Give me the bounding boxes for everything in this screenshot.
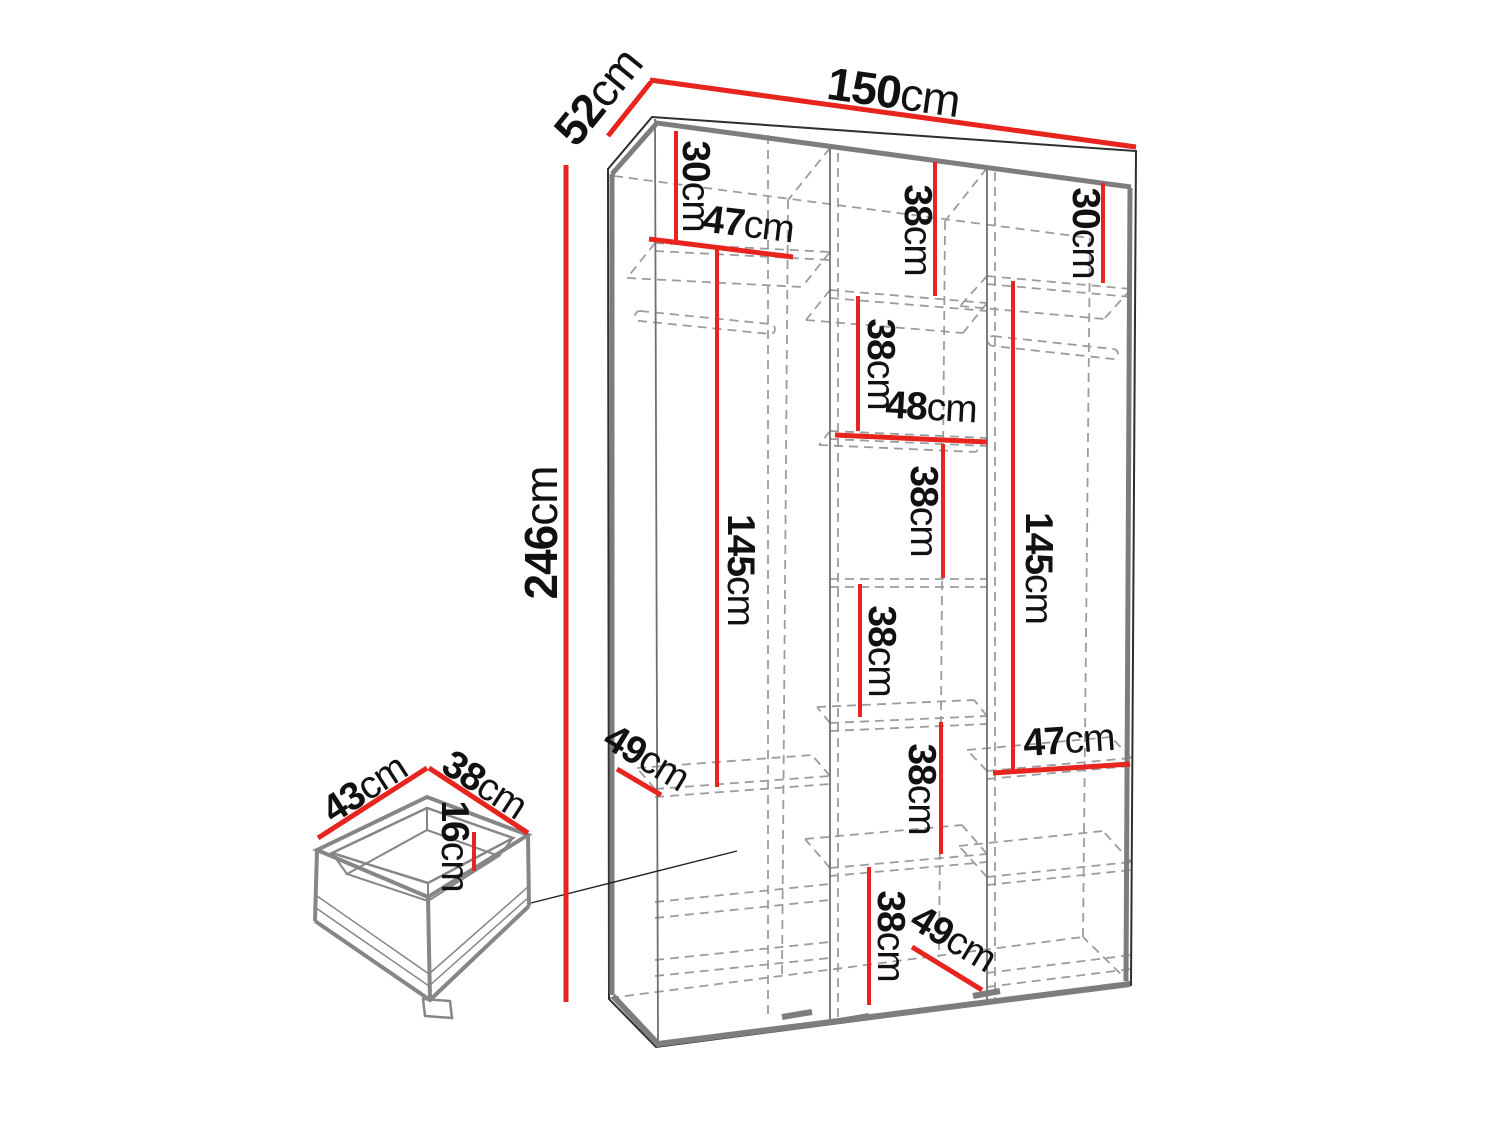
dim-label-overall-height: 246cm: [515, 466, 567, 599]
right-hanging-rail: [988, 336, 1118, 359]
cabinet-base: [613, 984, 1130, 1044]
cabinet-front-left-edge: [655, 119, 658, 1046]
drawer-foot: [423, 999, 452, 1018]
dim-label-right-top-section: 30cm: [1064, 187, 1107, 278]
dim-label-middle-shelf-width: 48cm: [884, 384, 978, 432]
dim-label-left-hanging-height: 145cm: [719, 514, 762, 626]
dim-label-left-shelf-width: 47cm: [700, 198, 796, 252]
dim-label-right-hanging-height: 145cm: [1017, 512, 1060, 624]
dim-label-overall-width: 150cm: [824, 57, 963, 127]
dim-label-drawer-height: 16cm: [433, 800, 476, 891]
wardrobe-dimension-diagram: 150cm 52cm 246cm 30cm 47cm 145cm 49cm 38…: [0, 0, 1500, 1125]
right-column-shelves-dashed: [959, 276, 1131, 987]
dim-label-bottom-depth: 49cm: [903, 897, 1003, 981]
drawer-pointer-line: [531, 851, 737, 903]
diagram-canvas: 150cm 52cm 246cm 30cm 47cm 145cm 49cm 38…: [0, 0, 1500, 1125]
dim-label-overall-depth: 52cm: [544, 38, 653, 155]
dim-label-right-shelf-width: 47cm: [1022, 716, 1116, 765]
dim-label-middle-section-4: 38cm: [860, 605, 903, 696]
dim-label-middle-section-1: 38cm: [896, 184, 939, 275]
dim-line-middle-shelf-width: [835, 435, 987, 442]
drawer-floor: [332, 808, 513, 901]
drawer-detail: [315, 797, 529, 1018]
dim-label-middle-bottom-section: 38cm: [869, 890, 912, 981]
dim-label-middle-section-5: 38cm: [900, 743, 943, 834]
dim-label-drawer-depth: 43cm: [315, 746, 415, 832]
dim-label-middle-section-3: 38cm: [902, 465, 945, 556]
